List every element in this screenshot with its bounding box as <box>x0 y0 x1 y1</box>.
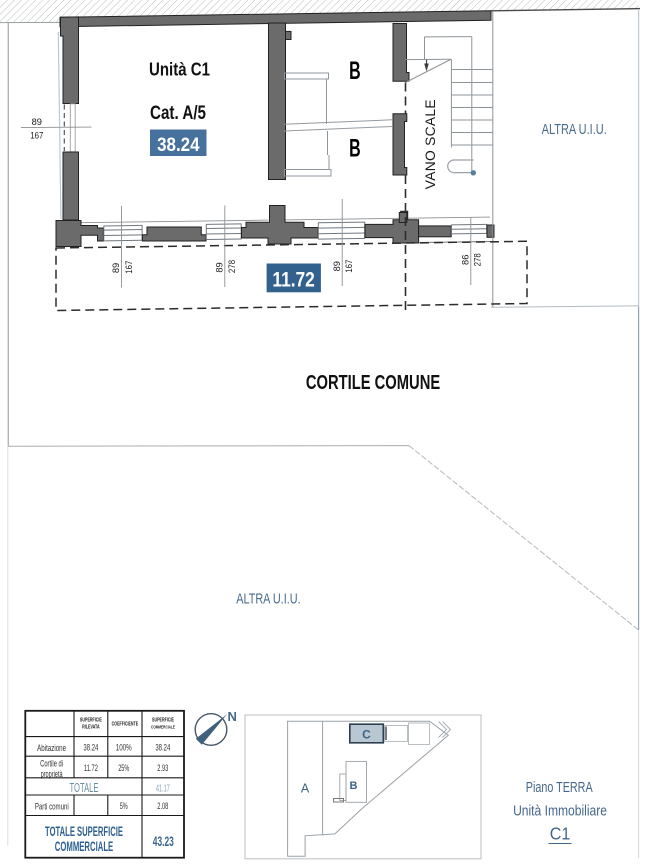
svg-text:TOTALE: TOTALE <box>70 782 99 795</box>
svg-text:167: 167 <box>123 260 134 273</box>
svg-text:86: 86 <box>460 255 470 265</box>
svg-text:C: C <box>362 727 371 741</box>
svg-text:Abitazione: Abitazione <box>37 743 66 754</box>
svg-text:COEFFICIENTE: COEFFICIENTE <box>112 721 139 727</box>
svg-text:89: 89 <box>32 117 42 127</box>
svg-text:COMMERCIALE: COMMERCIALE <box>151 724 175 730</box>
svg-text:Piano TERRA: Piano TERRA <box>526 778 593 795</box>
svg-text:2.93: 2.93 <box>157 762 168 773</box>
svg-text:278: 278 <box>226 260 237 273</box>
svg-text:Cat. A/5: Cat. A/5 <box>150 101 206 123</box>
svg-text:43.23: 43.23 <box>153 835 174 850</box>
svg-text:38.24: 38.24 <box>155 742 170 753</box>
svg-text:B: B <box>350 780 358 792</box>
svg-text:100%: 100% <box>116 742 132 753</box>
svg-text:Unità C1: Unità C1 <box>149 59 210 80</box>
svg-text:89: 89 <box>215 262 225 272</box>
svg-text:278: 278 <box>472 253 483 266</box>
svg-text:38.24: 38.24 <box>157 133 200 155</box>
svg-text:B: B <box>349 135 361 162</box>
svg-text:41.17: 41.17 <box>156 781 170 793</box>
svg-text:SUPERFICIE: SUPERFICIE <box>80 717 102 723</box>
svg-text:COMMERCIALE: COMMERCIALE <box>55 840 114 855</box>
svg-text:11.72: 11.72 <box>84 763 98 774</box>
svg-text:proprietà: proprietà <box>41 768 64 779</box>
svg-text:167: 167 <box>343 259 354 272</box>
svg-text:167: 167 <box>30 130 43 141</box>
svg-text:11.72: 11.72 <box>272 269 314 292</box>
svg-text:SUPERFICIE: SUPERFICIE <box>152 717 174 723</box>
svg-text:C1: C1 <box>550 824 571 844</box>
svg-text:ALTRA U.I.U.: ALTRA U.I.U. <box>542 121 607 138</box>
svg-text:5%: 5% <box>120 801 128 812</box>
svg-text:CORTILE COMUNE: CORTILE COMUNE <box>306 371 441 394</box>
svg-text:Cortile di: Cortile di <box>40 758 63 769</box>
svg-text:RILEVATA: RILEVATA <box>82 724 100 730</box>
svg-text:38.24: 38.24 <box>83 742 98 753</box>
svg-text:2.08: 2.08 <box>157 801 168 812</box>
svg-text:89: 89 <box>111 263 121 273</box>
svg-text:A: A <box>301 782 310 796</box>
svg-text:89: 89 <box>332 261 342 271</box>
svg-text:B: B <box>349 57 361 84</box>
svg-text:25%: 25% <box>118 762 129 773</box>
svg-text:Parti comuni: Parti comuni <box>35 801 69 812</box>
svg-text:Unità Immobiliare: Unità Immobiliare <box>513 802 607 818</box>
svg-text:N: N <box>228 709 237 724</box>
svg-text:VANO SCALE: VANO SCALE <box>423 99 438 189</box>
svg-text:TOTALE SUPERFICIE: TOTALE SUPERFICIE <box>45 825 123 840</box>
svg-text:ALTRA U.I.U.: ALTRA U.I.U. <box>236 590 300 607</box>
